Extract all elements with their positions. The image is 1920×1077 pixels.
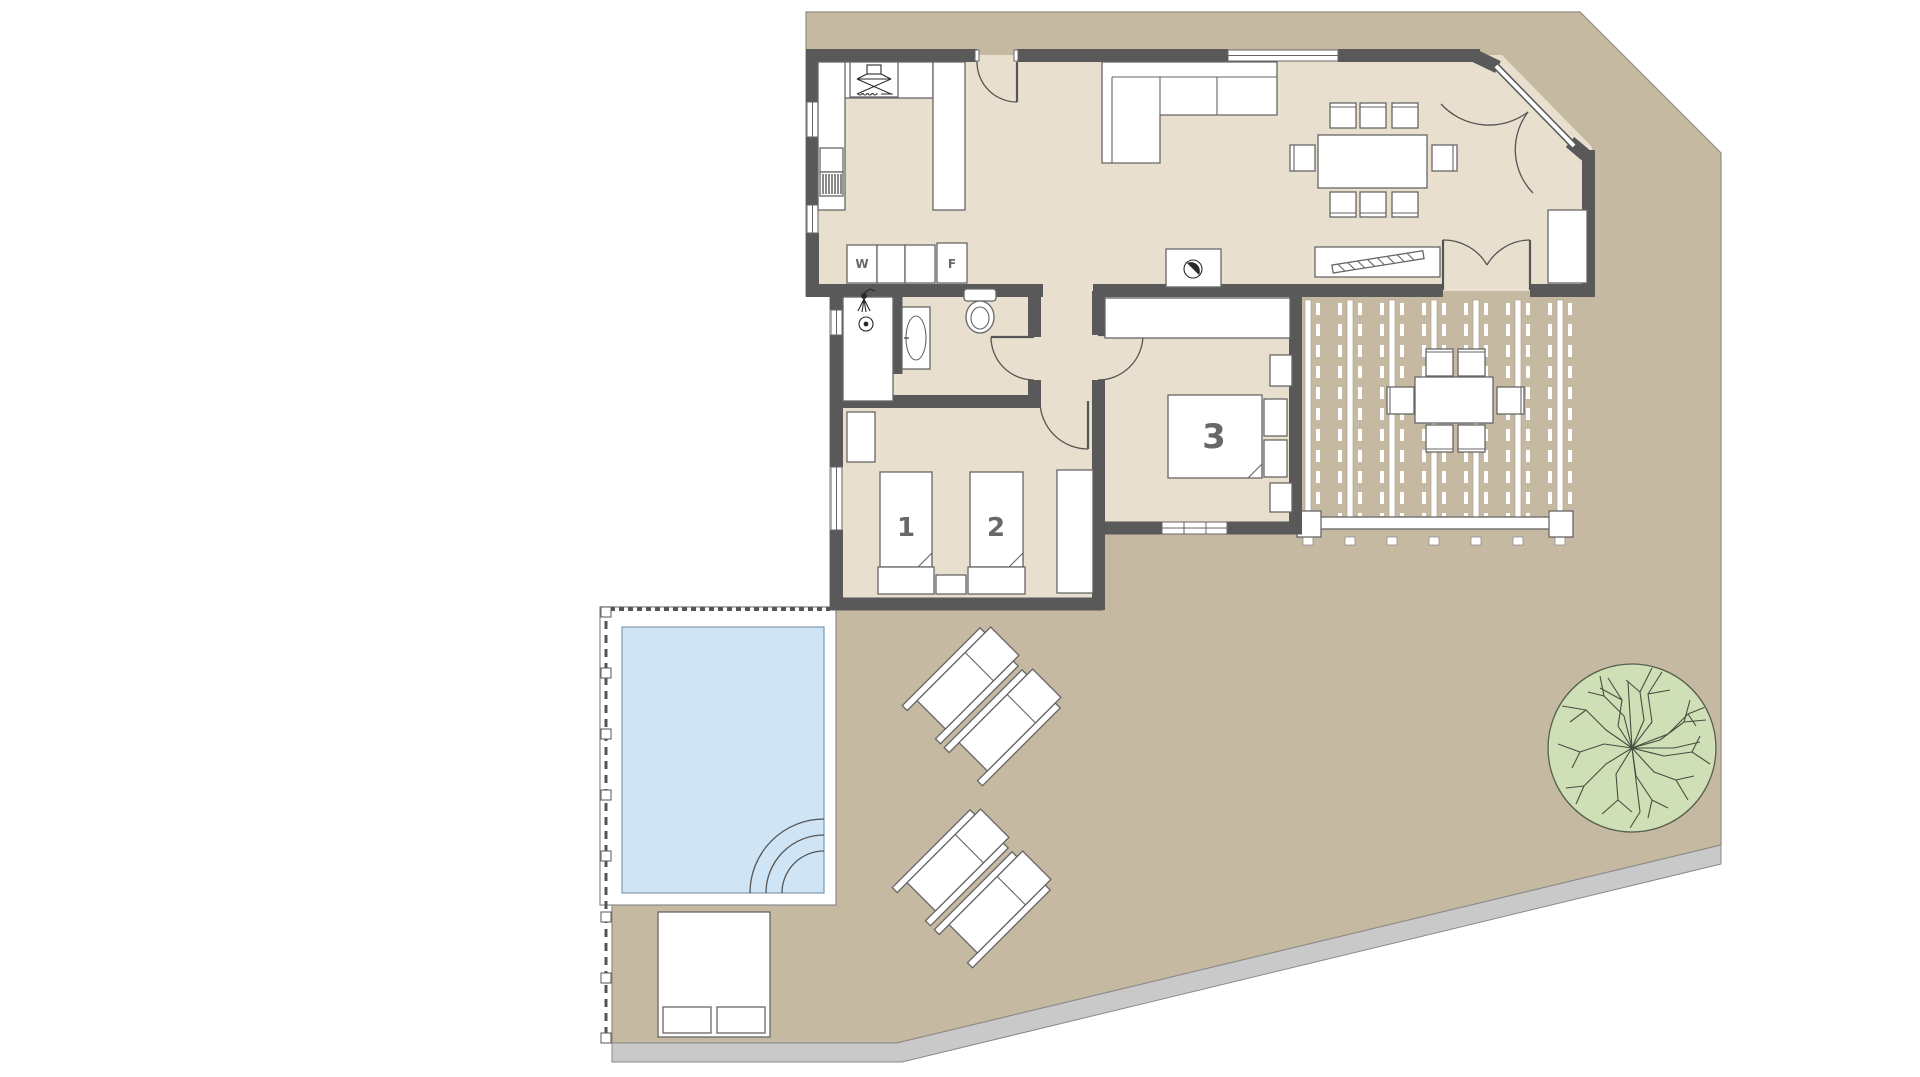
window xyxy=(807,205,818,233)
nightstand xyxy=(936,575,966,594)
stove-unit xyxy=(1166,249,1221,287)
dining-chair xyxy=(1330,103,1356,128)
dining-chair xyxy=(1360,103,1386,128)
dining-chair xyxy=(1392,103,1418,128)
fridge-label: F xyxy=(948,257,956,271)
pergola-beam xyxy=(1300,517,1570,529)
outdoor-chair xyxy=(1497,387,1524,414)
washing-machine-label: W xyxy=(855,257,868,271)
tall-cabinet xyxy=(1548,210,1587,283)
shower-tray xyxy=(843,297,893,401)
window xyxy=(831,467,842,530)
kitchen-sink xyxy=(850,62,898,97)
bed-pillow xyxy=(1264,399,1287,436)
dining-chair xyxy=(1290,145,1315,171)
toilet xyxy=(964,289,996,333)
outdoor-table xyxy=(1415,377,1493,423)
pool xyxy=(622,627,824,893)
dining-chair xyxy=(1330,192,1356,217)
outdoor-chair xyxy=(1458,349,1485,376)
dining-table xyxy=(1318,135,1427,188)
bathroom-vanity xyxy=(902,307,930,369)
bedroom-cabinet xyxy=(847,412,875,462)
daybed-pillow xyxy=(663,1007,711,1033)
bed-bench xyxy=(878,567,934,594)
floor-plan-page: W F xyxy=(0,0,1920,1077)
bed-pillow xyxy=(1264,440,1287,477)
daybed-pillow xyxy=(717,1007,765,1033)
double-bed xyxy=(1168,395,1287,478)
wardrobe xyxy=(1105,298,1290,338)
window xyxy=(1228,50,1338,61)
wardrobe xyxy=(1057,470,1093,593)
kitchen-island xyxy=(933,62,965,210)
outdoor-chair xyxy=(1426,425,1453,452)
dining-chair xyxy=(1360,192,1386,217)
daybed xyxy=(658,912,770,1037)
tree xyxy=(1548,664,1716,832)
outdoor-chair xyxy=(1426,349,1453,376)
nightstand xyxy=(1270,355,1292,386)
window xyxy=(807,102,818,137)
tv-sideboard xyxy=(1315,247,1440,277)
window xyxy=(1162,522,1227,534)
window xyxy=(831,310,842,335)
pergola-post xyxy=(1549,511,1573,537)
outdoor-chair xyxy=(1458,425,1485,452)
bedroom-3-label: 3 xyxy=(1202,417,1226,457)
dining-chair xyxy=(1432,145,1457,171)
bed-1-label: 1 xyxy=(897,513,915,543)
dining-chair xyxy=(1392,192,1418,217)
bed-2-label: 2 xyxy=(987,513,1005,543)
kitchen-unit xyxy=(877,245,905,283)
outdoor-chair xyxy=(1387,387,1414,414)
appliance-radiator xyxy=(820,148,843,196)
nightstand xyxy=(1270,483,1292,512)
floor-plan-drawing: W F xyxy=(0,0,1920,1077)
kitchen-unit xyxy=(905,245,935,283)
bed-bench xyxy=(968,567,1025,594)
